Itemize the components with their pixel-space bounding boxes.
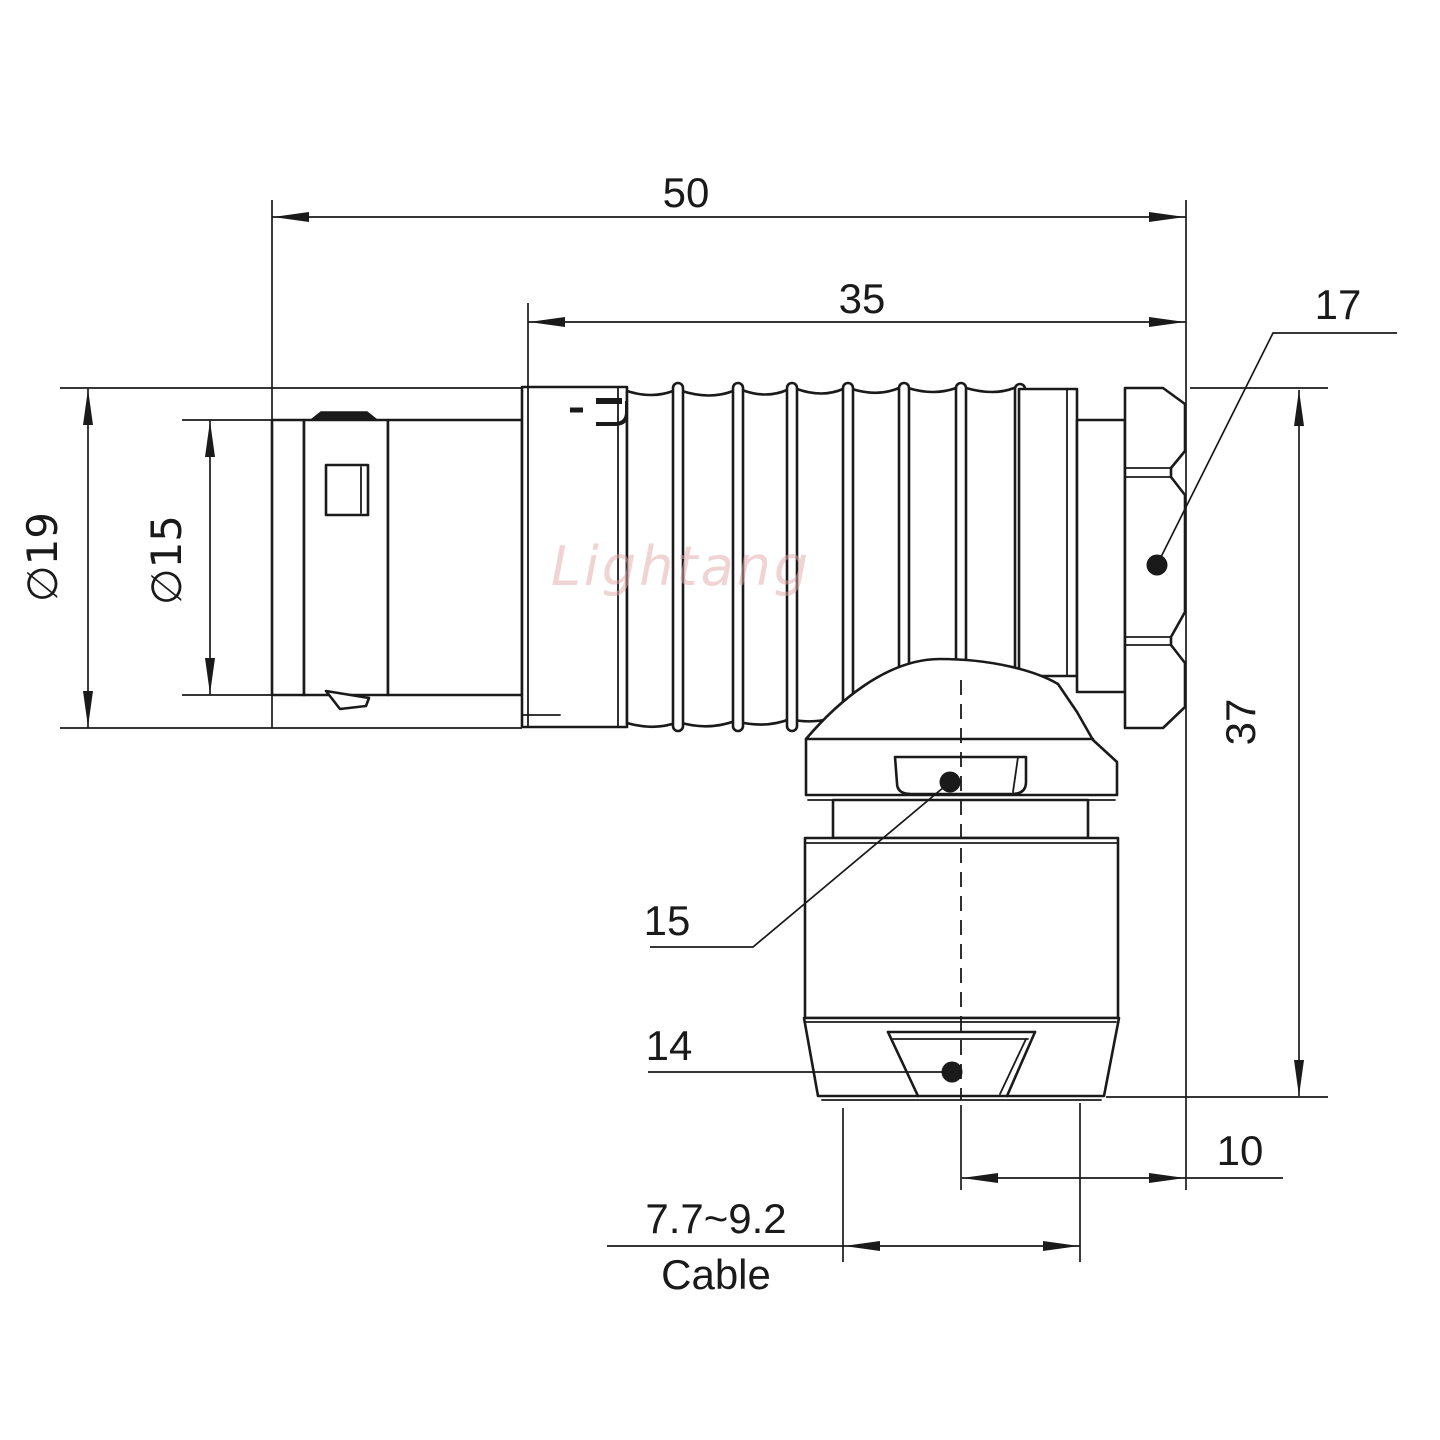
front-tube (272, 420, 304, 695)
label-clamp-cone: 14 (646, 1022, 693, 1069)
leader-dot-17 (1147, 555, 1168, 576)
arrow-dia15-bottom (205, 658, 215, 694)
arrow-37-bottom (1294, 1060, 1304, 1096)
arrow-50-right (1149, 212, 1185, 222)
arrow-dia15-top (205, 421, 215, 457)
arrow-50-left (273, 212, 309, 222)
connector-body (272, 383, 1185, 1100)
watermark-text: Lightang (551, 535, 811, 598)
arrow-dia19-bottom (83, 691, 93, 727)
shell-top-tab (311, 412, 377, 420)
arrow-37-top (1294, 390, 1304, 426)
arrow-dia19-top (83, 389, 93, 425)
label-overall-height: 37 (1217, 699, 1264, 746)
label-offset: 10 (1217, 1127, 1264, 1174)
dimension-arrows (83, 212, 1304, 1251)
leader-dot-15 (940, 772, 961, 793)
grip-rib (843, 383, 853, 731)
connector-technical-drawing: Lightang 50 35 (0, 0, 1440, 1440)
mid-cylinder (388, 420, 522, 695)
label-overall-length: 50 (663, 169, 710, 216)
rear-cylinder (1019, 389, 1077, 676)
arrow-cable-left (844, 1241, 880, 1251)
arrow-cable-right (1043, 1241, 1079, 1251)
label-cable-caption: Cable (661, 1251, 771, 1298)
label-cable-range: 7.7~9.2 (645, 1195, 786, 1242)
arrow-10-right (1149, 1173, 1185, 1183)
label-hex-nut-size: 17 (1315, 281, 1362, 328)
arrow-35-right (1149, 317, 1185, 327)
arrow-35-left (529, 317, 565, 327)
label-outer-diameter: ∅19 (18, 512, 67, 602)
front-shell (304, 420, 388, 695)
label-rear-body-length: 35 (839, 275, 886, 322)
leader-17 (1157, 333, 1397, 565)
drawing-canvas: Lightang 50 35 (0, 0, 1440, 1440)
hex-washer (1077, 420, 1125, 692)
label-inner-diameter: ∅15 (142, 515, 191, 605)
arrow-10-left (962, 1173, 998, 1183)
dimension-labels: 50 35 17 ∅19 ∅15 37 15 14 10 7.7~9.2 Cab… (18, 169, 1361, 1298)
leader-dot-14 (942, 1062, 963, 1083)
label-gland-collar: 15 (644, 897, 691, 944)
